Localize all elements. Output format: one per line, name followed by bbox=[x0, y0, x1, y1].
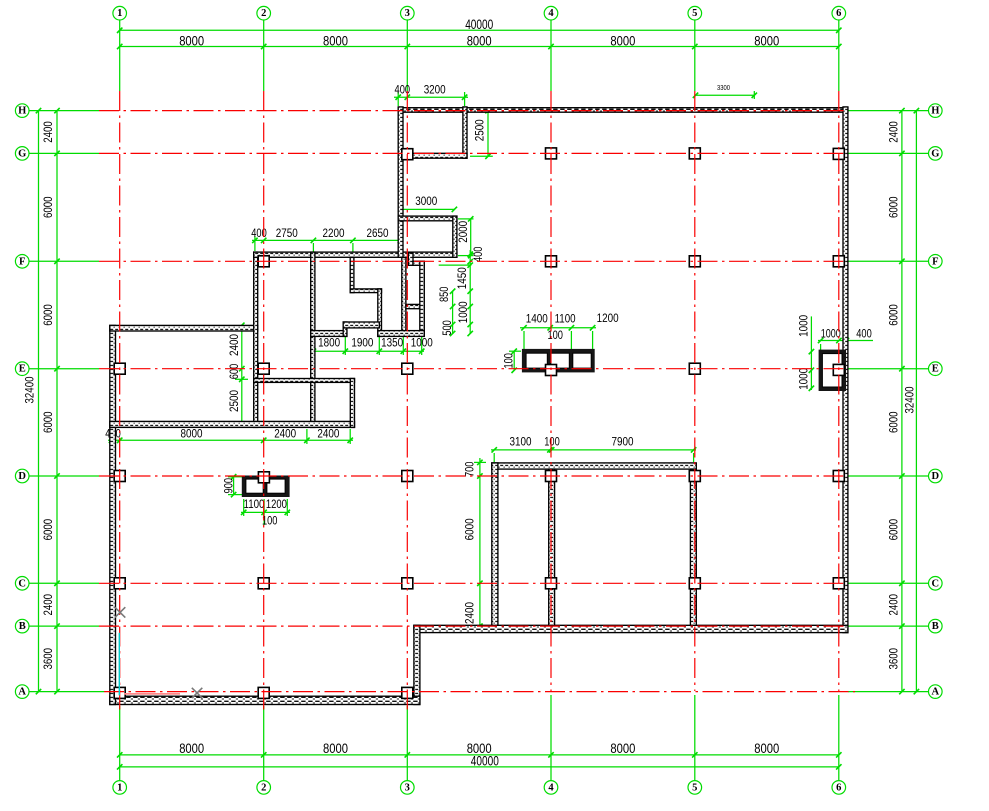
svg-text:2650: 2650 bbox=[367, 226, 389, 240]
svg-text:6000: 6000 bbox=[41, 519, 55, 541]
svg-text:1000: 1000 bbox=[821, 326, 841, 340]
svg-text:2400: 2400 bbox=[274, 427, 296, 441]
svg-text:2400: 2400 bbox=[41, 121, 55, 143]
svg-text:B: B bbox=[19, 621, 26, 632]
svg-text:3: 3 bbox=[405, 8, 410, 19]
svg-text:2400: 2400 bbox=[462, 602, 476, 624]
svg-text:900: 900 bbox=[222, 478, 236, 494]
svg-text:1000: 1000 bbox=[797, 368, 811, 390]
svg-text:3000: 3000 bbox=[415, 194, 437, 208]
svg-text:7900: 7900 bbox=[612, 435, 634, 449]
svg-text:8000: 8000 bbox=[610, 741, 635, 756]
svg-text:1: 1 bbox=[117, 782, 122, 793]
svg-text:2000: 2000 bbox=[456, 221, 470, 243]
svg-text:850: 850 bbox=[437, 286, 451, 302]
svg-text:1200: 1200 bbox=[266, 497, 287, 511]
svg-text:G: G bbox=[18, 148, 26, 159]
svg-text:1100: 1100 bbox=[244, 497, 265, 511]
svg-text:D: D bbox=[18, 471, 26, 482]
svg-text:E: E bbox=[19, 364, 26, 375]
svg-text:A: A bbox=[18, 687, 26, 698]
svg-text:8000: 8000 bbox=[754, 741, 779, 756]
svg-text:1200: 1200 bbox=[597, 311, 619, 325]
svg-text:D: D bbox=[932, 471, 940, 482]
svg-text:F: F bbox=[19, 256, 25, 267]
svg-text:8000: 8000 bbox=[754, 33, 779, 48]
svg-text:4: 4 bbox=[548, 8, 554, 19]
svg-text:6000: 6000 bbox=[462, 518, 476, 540]
svg-text:1000: 1000 bbox=[456, 301, 470, 323]
svg-text:400: 400 bbox=[856, 326, 872, 340]
svg-text:40000: 40000 bbox=[465, 17, 493, 32]
svg-text:6000: 6000 bbox=[887, 304, 901, 326]
svg-text:32400: 32400 bbox=[23, 376, 37, 403]
svg-text:2400: 2400 bbox=[887, 594, 901, 616]
svg-text:2400: 2400 bbox=[227, 334, 241, 356]
svg-text:3600: 3600 bbox=[41, 648, 55, 670]
svg-text:2400: 2400 bbox=[887, 121, 901, 143]
svg-text:2500: 2500 bbox=[227, 390, 241, 412]
svg-text:8000: 8000 bbox=[610, 33, 635, 48]
svg-text:6: 6 bbox=[836, 782, 841, 793]
svg-text:6000: 6000 bbox=[41, 304, 55, 326]
svg-text:6000: 6000 bbox=[887, 519, 901, 541]
svg-text:A: A bbox=[932, 687, 940, 698]
svg-text:B: B bbox=[932, 621, 939, 632]
svg-text:G: G bbox=[931, 148, 939, 159]
svg-text:8000: 8000 bbox=[179, 33, 204, 48]
svg-text:100: 100 bbox=[547, 328, 563, 342]
svg-text:6: 6 bbox=[836, 8, 841, 19]
svg-text:3300: 3300 bbox=[717, 85, 730, 92]
svg-text:400: 400 bbox=[471, 246, 485, 262]
svg-text:3100: 3100 bbox=[510, 435, 532, 449]
svg-text:1: 1 bbox=[117, 8, 122, 19]
svg-text:8000: 8000 bbox=[323, 741, 348, 756]
svg-text:8000: 8000 bbox=[181, 427, 203, 441]
svg-text:3: 3 bbox=[405, 782, 410, 793]
svg-text:2400: 2400 bbox=[317, 427, 339, 441]
svg-text:1400: 1400 bbox=[526, 312, 548, 326]
svg-text:8000: 8000 bbox=[467, 33, 492, 48]
svg-text:2: 2 bbox=[261, 8, 266, 19]
svg-text:3600: 3600 bbox=[887, 648, 901, 670]
svg-text:100: 100 bbox=[502, 353, 516, 369]
svg-text:4: 4 bbox=[548, 782, 554, 793]
svg-text:1350: 1350 bbox=[381, 336, 403, 350]
svg-text:6000: 6000 bbox=[41, 411, 55, 433]
svg-text:C: C bbox=[18, 578, 26, 589]
svg-text:1000: 1000 bbox=[797, 315, 811, 337]
svg-text:6000: 6000 bbox=[887, 411, 901, 433]
svg-text:2200: 2200 bbox=[323, 226, 345, 240]
svg-text:H: H bbox=[931, 106, 939, 117]
svg-text:8000: 8000 bbox=[179, 741, 204, 756]
svg-text:5: 5 bbox=[692, 8, 697, 19]
svg-text:5: 5 bbox=[692, 782, 697, 793]
svg-text:1000: 1000 bbox=[411, 336, 433, 350]
svg-text:2500: 2500 bbox=[473, 119, 487, 141]
svg-text:8000: 8000 bbox=[323, 33, 348, 48]
svg-text:1800: 1800 bbox=[318, 336, 340, 350]
svg-text:40000: 40000 bbox=[471, 754, 499, 769]
svg-text:F: F bbox=[932, 256, 938, 267]
svg-text:1450: 1450 bbox=[455, 267, 469, 289]
svg-text:1900: 1900 bbox=[351, 336, 373, 350]
svg-text:2400: 2400 bbox=[41, 594, 55, 616]
svg-text:32400: 32400 bbox=[903, 386, 917, 413]
svg-text:E: E bbox=[932, 364, 939, 375]
svg-text:C: C bbox=[932, 578, 940, 589]
svg-text:1100: 1100 bbox=[555, 312, 576, 326]
svg-text:6000: 6000 bbox=[41, 196, 55, 218]
svg-text:100: 100 bbox=[544, 435, 560, 449]
svg-text:3200: 3200 bbox=[424, 83, 446, 97]
svg-text:400: 400 bbox=[251, 226, 267, 240]
svg-text:700: 700 bbox=[462, 461, 476, 477]
svg-text:2750: 2750 bbox=[276, 226, 298, 240]
svg-text:6000: 6000 bbox=[887, 196, 901, 218]
svg-text:2: 2 bbox=[261, 782, 266, 793]
svg-text:H: H bbox=[18, 106, 26, 117]
svg-text:500: 500 bbox=[440, 320, 454, 336]
svg-text:600: 600 bbox=[227, 364, 241, 380]
